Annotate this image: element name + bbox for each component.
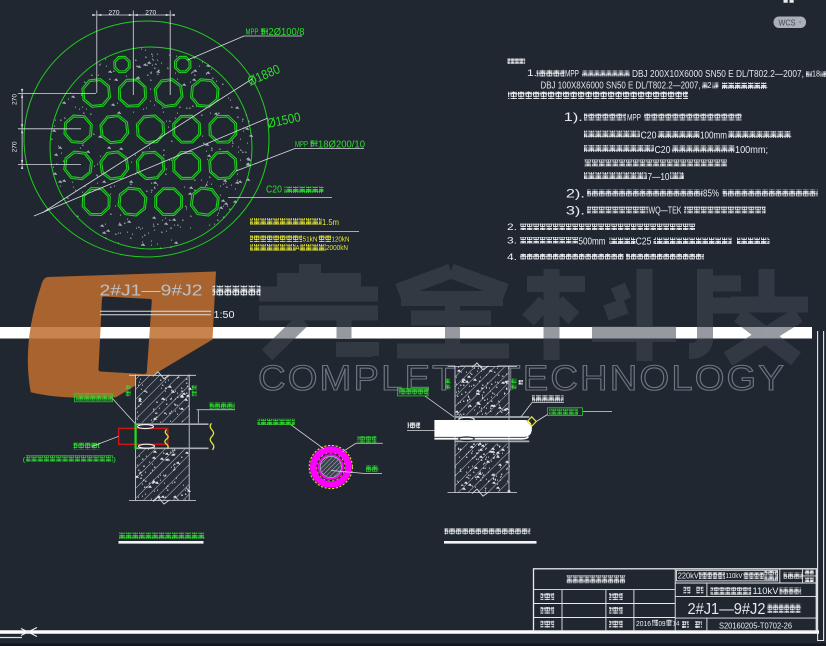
svg-text:85%: 85% <box>703 188 719 200</box>
svg-text:MPP: MPP <box>246 27 259 37</box>
svg-text:A: A <box>296 245 300 252</box>
svg-text:2#J1—9#J2: 2#J1—9#J2 <box>100 283 203 300</box>
svg-text:220kV: 220kV <box>678 572 700 581</box>
svg-text:2: 2 <box>708 81 712 90</box>
svg-text:3.: 3. <box>507 236 517 247</box>
svg-text:C25: C25 <box>636 236 652 248</box>
svg-text:C20: C20 <box>266 185 282 196</box>
svg-text:2.: 2. <box>507 222 517 233</box>
svg-text:100mm: 100mm <box>700 130 727 142</box>
svg-text:18Ø200/10: 18Ø200/10 <box>318 140 365 151</box>
svg-text:270: 270 <box>12 141 19 152</box>
svg-text:): ) <box>113 457 116 464</box>
svg-text:3).: 3). <box>566 204 585 218</box>
svg-text:2#J1—9#J2: 2#J1—9#J2 <box>688 601 766 618</box>
svg-text:WCS: WCS <box>779 17 796 27</box>
svg-text:120kN: 120kN <box>332 237 350 244</box>
svg-text:100mm;: 100mm; <box>735 144 768 156</box>
svg-text:14: 14 <box>673 621 680 628</box>
svg-text:2016: 2016 <box>636 621 651 628</box>
svg-text:09: 09 <box>659 621 666 628</box>
svg-text:270: 270 <box>12 94 19 105</box>
svg-text:WQ—TEK: WQ—TEK <box>649 205 682 217</box>
svg-text:S20160205-T0702-26: S20160205-T0702-26 <box>719 621 792 631</box>
svg-text:MPP: MPP <box>627 113 641 123</box>
svg-text:1).: 1). <box>564 110 583 124</box>
svg-text:110kV: 110kV <box>753 586 780 597</box>
svg-text:C20: C20 <box>641 130 657 142</box>
svg-text:2Ø100/8: 2Ø100/8 <box>269 27 305 38</box>
svg-text:4.: 4. <box>507 252 517 263</box>
svg-text:MPP: MPP <box>295 139 308 149</box>
svg-text:COMPLETE TECHNOLOGY: COMPLETE TECHNOLOGY <box>258 358 786 398</box>
svg-text:18: 18 <box>812 70 820 79</box>
svg-text:DBJ 200X10X6000 SN50 E DL/T802: DBJ 200X10X6000 SN50 E DL/T802.2—2007, <box>632 69 804 80</box>
svg-text:DBJ 100X8X6000 SN50 E DL/T802.: DBJ 100X8X6000 SN50 E DL/T802.2—2007, <box>541 81 701 92</box>
svg-text:MPP: MPP <box>565 69 579 79</box>
svg-text:7—10: 7—10 <box>648 171 670 183</box>
svg-text:1.5m: 1.5m <box>322 218 339 227</box>
svg-text:2000kN: 2000kN <box>326 245 348 252</box>
svg-text:51kN: 51kN <box>303 237 318 244</box>
svg-text:270: 270 <box>145 9 156 16</box>
svg-text:1.: 1. <box>527 68 537 79</box>
svg-text:270: 270 <box>109 9 120 16</box>
svg-text:C20: C20 <box>655 144 671 156</box>
svg-text:1:50: 1:50 <box>214 310 235 321</box>
svg-text:110kV: 110kV <box>726 573 743 580</box>
svg-text:500mm: 500mm <box>579 236 606 248</box>
svg-text:2).: 2). <box>566 187 585 201</box>
